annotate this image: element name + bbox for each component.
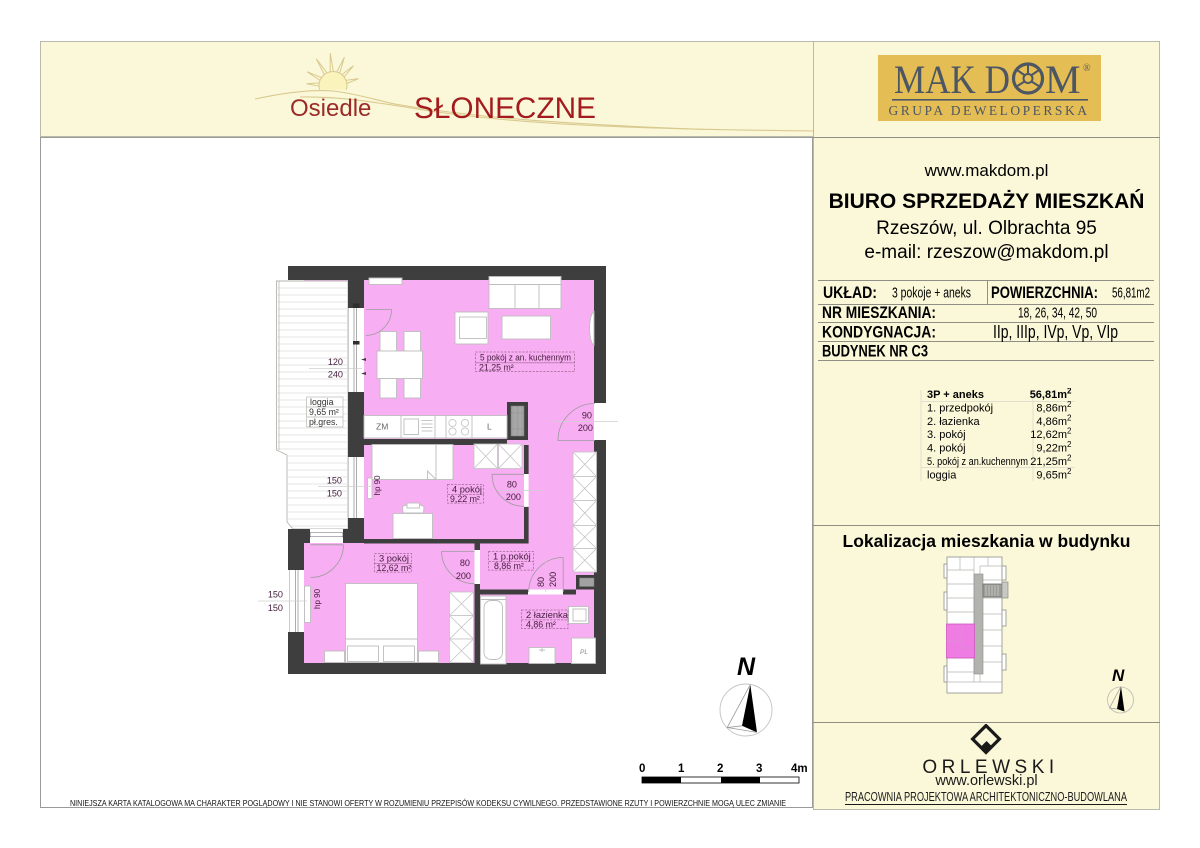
svg-text:L: L — [487, 422, 492, 432]
svg-text:90: 90 — [582, 411, 592, 421]
svg-text:200: 200 — [548, 572, 558, 587]
svg-text:200: 200 — [506, 492, 521, 502]
svg-text:8,86 m²: 8,86 m² — [494, 561, 524, 571]
svg-text:150: 150 — [268, 603, 283, 613]
svg-text:12,62 m²: 12,62 m² — [377, 563, 412, 573]
svg-text:80: 80 — [536, 577, 546, 587]
svg-text:5 pokój z an. kuchennym: 5 pokój z an. kuchennym — [480, 353, 571, 363]
svg-text:hp 90: hp 90 — [313, 588, 322, 609]
svg-text:ZM: ZM — [376, 422, 388, 432]
svg-text:150: 150 — [268, 590, 283, 600]
svg-text:4,86 m²: 4,86 m² — [526, 619, 556, 629]
svg-text:200: 200 — [456, 571, 471, 581]
svg-text:240: 240 — [328, 370, 343, 380]
svg-text:3: 3 — [756, 763, 762, 775]
svg-text:9,22 m²: 9,22 m² — [450, 494, 480, 504]
svg-text:2: 2 — [717, 763, 723, 775]
svg-text:150: 150 — [327, 476, 342, 486]
svg-text:80: 80 — [507, 480, 517, 490]
svg-text:0: 0 — [639, 763, 645, 775]
svg-text:N: N — [737, 653, 756, 681]
svg-text:80: 80 — [460, 558, 470, 568]
svg-text:9,65 m²: 9,65 m² — [309, 407, 339, 417]
svg-text:150: 150 — [327, 489, 342, 499]
svg-text:200: 200 — [578, 423, 593, 433]
svg-text:4m: 4m — [791, 763, 808, 775]
svg-text:21,25 m²: 21,25 m² — [479, 363, 514, 373]
svg-text:loggia: loggia — [310, 397, 334, 407]
svg-text:1: 1 — [678, 763, 685, 775]
svg-text:PL: PL — [580, 649, 588, 656]
svg-text:pł.gres.: pł.gres. — [309, 417, 338, 427]
svg-text:120: 120 — [328, 357, 343, 367]
svg-text:hp 90: hp 90 — [373, 475, 382, 496]
